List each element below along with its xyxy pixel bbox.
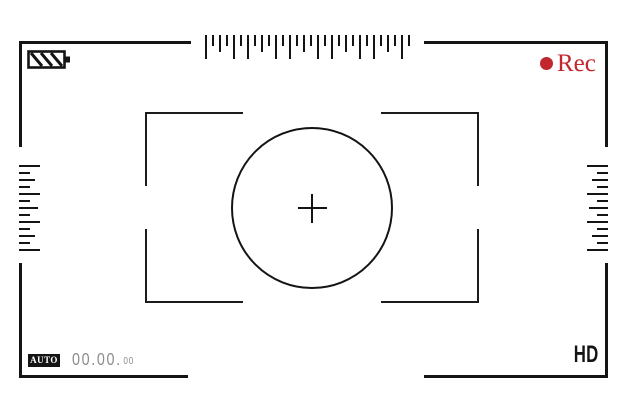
left-ruler-tick — [19, 172, 30, 174]
right-ruler-tick — [587, 193, 608, 195]
top-ruler-tick — [205, 35, 207, 59]
focus-bracket-top-left-h — [145, 112, 243, 114]
frame-left-upper-segment — [19, 41, 22, 147]
focus-bracket-bottom-right-v — [477, 229, 479, 303]
left-ruler-tick — [19, 179, 35, 181]
right-ruler-tick — [597, 228, 608, 230]
rec-indicator[interactable]: Rec — [540, 51, 596, 76]
left-ruler-tick — [19, 221, 40, 223]
top-ruler-tick — [240, 35, 242, 46]
focus-bracket-bottom-left-h — [145, 301, 243, 303]
top-ruler-tick — [226, 35, 228, 46]
left-ruler-tick — [19, 249, 40, 251]
right-ruler — [587, 165, 608, 251]
frame-right-lower-segment — [605, 263, 608, 378]
top-ruler-tick — [394, 35, 396, 46]
rec-label: Rec — [557, 51, 596, 76]
focus-bracket-top-right-v — [477, 112, 479, 186]
top-ruler-tick — [296, 35, 298, 46]
top-ruler — [205, 35, 410, 59]
top-ruler-tick — [289, 35, 291, 59]
top-ruler-tick — [401, 35, 403, 59]
timecode-main: 00.00. — [72, 351, 122, 368]
frame-bottom-right-segment — [424, 375, 608, 378]
top-ruler-tick — [345, 35, 347, 52]
right-ruler-tick — [592, 235, 608, 237]
top-ruler-tick — [261, 35, 263, 52]
top-ruler-tick — [219, 35, 221, 52]
right-ruler-tick — [587, 249, 608, 251]
left-ruler-tick — [19, 186, 30, 188]
right-ruler-tick — [589, 207, 608, 209]
right-ruler-tick — [597, 242, 608, 244]
left-ruler-tick — [19, 228, 30, 230]
hd-quality-label: HD — [574, 343, 599, 366]
right-ruler-tick — [587, 165, 608, 167]
focus-bracket-top-right-h — [381, 112, 479, 114]
top-ruler-tick — [282, 35, 284, 46]
top-ruler-tick — [233, 35, 235, 59]
timecode: 00.00. 00 — [72, 351, 134, 368]
top-ruler-tick — [317, 35, 319, 59]
top-ruler-tick — [303, 35, 305, 52]
frame-right-upper-segment — [605, 41, 608, 147]
battery-icon — [27, 49, 71, 70]
top-ruler-tick — [366, 35, 368, 46]
right-ruler-tick — [592, 179, 608, 181]
frame-bottom-left-segment — [19, 375, 188, 378]
frame-top-right-segment — [424, 41, 608, 44]
top-ruler-tick — [359, 35, 361, 59]
top-ruler-tick — [408, 35, 410, 46]
frame-left-lower-segment — [19, 263, 22, 378]
left-ruler — [19, 165, 40, 251]
crosshair-icon — [311, 194, 313, 223]
left-ruler-tick — [19, 235, 35, 237]
camera-viewfinder: Rec AUTO 00.00. 00 HD — [0, 0, 626, 418]
focus-bracket-bottom-left-v — [145, 229, 147, 303]
record-dot-icon — [540, 57, 553, 70]
left-ruler-tick — [19, 200, 30, 202]
top-ruler-tick — [352, 35, 354, 46]
top-ruler-tick — [324, 35, 326, 46]
right-ruler-tick — [597, 172, 608, 174]
timecode-seconds: 00 — [123, 356, 134, 368]
right-ruler-tick — [587, 221, 608, 223]
top-ruler-tick — [254, 35, 256, 46]
left-ruler-tick — [19, 214, 30, 216]
top-ruler-tick — [380, 35, 382, 46]
top-ruler-tick — [212, 35, 214, 46]
left-ruler-tick — [19, 193, 40, 195]
top-ruler-tick — [331, 35, 333, 59]
focus-bracket-top-left-v — [145, 112, 147, 186]
left-ruler-tick — [19, 165, 40, 167]
top-ruler-tick — [275, 35, 277, 59]
right-ruler-tick — [597, 186, 608, 188]
top-ruler-tick — [310, 35, 312, 46]
right-ruler-tick — [597, 200, 608, 202]
right-ruler-tick — [597, 214, 608, 216]
left-ruler-tick — [19, 207, 38, 209]
top-ruler-tick — [387, 35, 389, 52]
top-ruler-tick — [338, 35, 340, 46]
auto-mode-badge[interactable]: AUTO — [28, 354, 60, 367]
frame-top-left-segment — [19, 41, 191, 44]
focus-bracket-bottom-right-h — [381, 301, 479, 303]
top-ruler-tick — [373, 35, 375, 59]
top-ruler-tick — [268, 35, 270, 46]
left-ruler-tick — [19, 242, 30, 244]
top-ruler-tick — [247, 35, 249, 59]
